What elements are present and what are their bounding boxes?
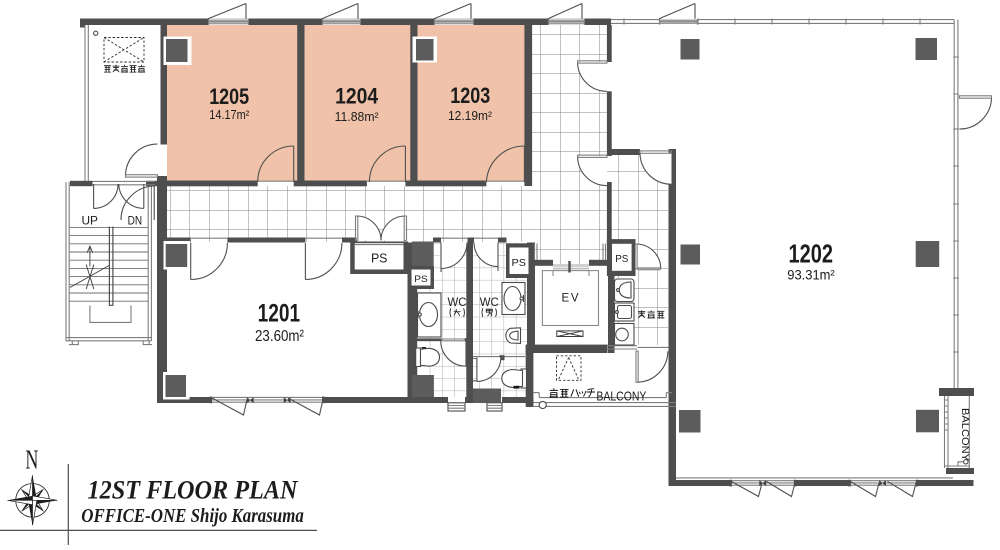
svg-text:PS: PS [512,257,527,269]
svg-text:DN: DN [128,214,143,228]
svg-text:E V: E V [562,293,579,305]
svg-text:PS: PS [371,251,388,266]
svg-text:UP: UP [81,214,98,228]
svg-text:BALCONY: BALCONY [959,408,970,461]
svg-text:BALCONY: BALCONY [596,390,647,404]
svg-text:93.31m²: 93.31m² [787,267,835,283]
svg-text:WC: WC [448,297,467,309]
svg-text:OFFICE-ONE Shijo Karasuma: OFFICE-ONE Shijo Karasuma [81,506,304,527]
svg-text:1205: 1205 [209,84,249,109]
svg-text:WC: WC [480,297,499,309]
svg-text:11.88m²: 11.88m² [335,109,380,124]
svg-text:14.17m²: 14.17m² [209,107,250,122]
svg-text:PS: PS [615,254,629,265]
svg-text:23.60m²: 23.60m² [255,328,305,345]
svg-text:PS: PS [414,274,428,285]
svg-text:12ST FLOOR PLAN: 12ST FLOOR PLAN [88,476,299,505]
svg-text:1202: 1202 [788,239,833,269]
svg-text:1201: 1201 [258,300,301,328]
svg-text:1204: 1204 [335,84,379,109]
svg-text:1203: 1203 [450,83,490,108]
svg-text:12.19m²: 12.19m² [448,108,493,123]
svg-text:N: N [25,445,38,475]
